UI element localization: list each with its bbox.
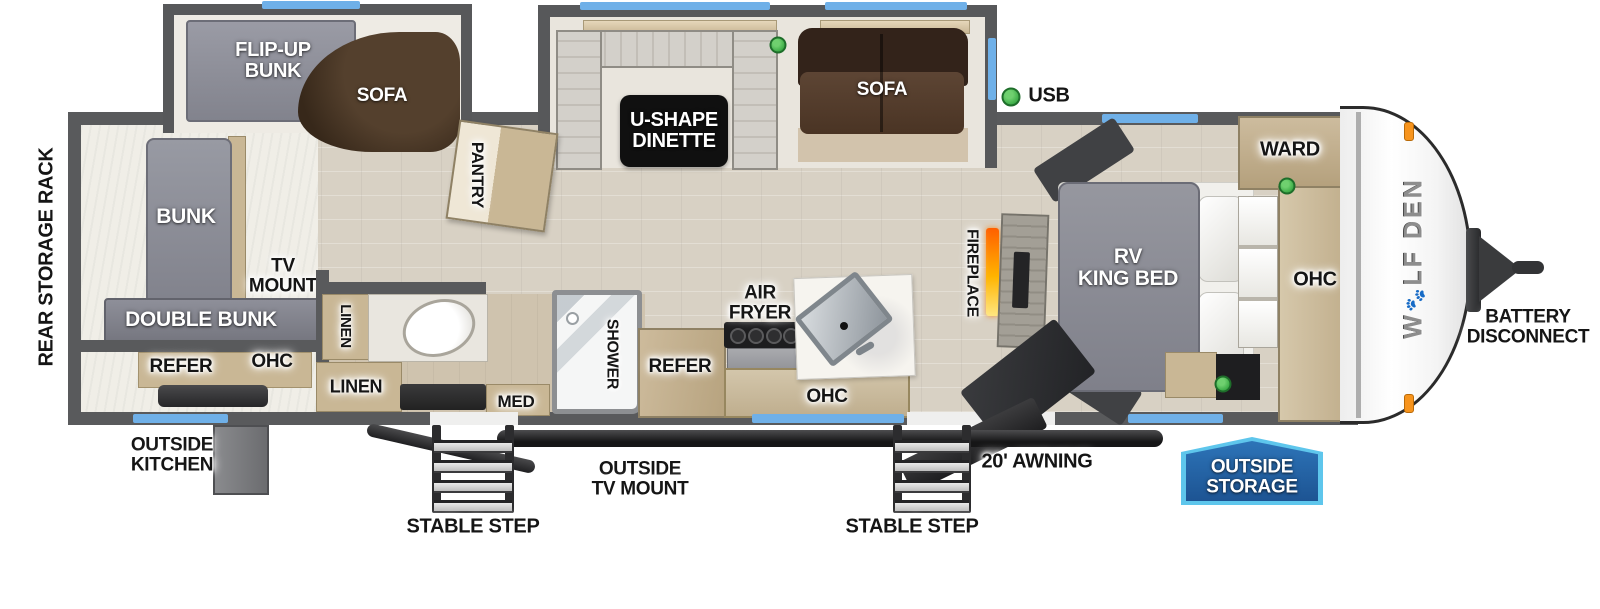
entry-door-gap-left (430, 412, 518, 425)
kitchen-ohc-label: OHC (806, 387, 847, 407)
floorplan-canvas: FLIP-UP BUNK SOFA U-SHAPE DINETTE SOFA U… (0, 0, 1600, 609)
outside-kitchen-door (213, 425, 269, 495)
outside-kitchen-refer-label: REFER (150, 357, 213, 377)
step-left-tread-4 (434, 500, 512, 513)
usb-indicator-dot-ward (1279, 178, 1296, 195)
bunk-slide-sofa-label: SOFA (357, 86, 408, 106)
bedroom-ohc-label: OHC (1293, 270, 1337, 291)
hitch-plate (1466, 228, 1481, 312)
rv-king-bed-label: RV KING BED (1078, 246, 1178, 290)
double-bunk-label: DOUBLE BUNK (125, 309, 277, 331)
step-left-tread-3 (434, 480, 512, 493)
paw-icon: 🐾 (1406, 286, 1427, 313)
linen-lower-label: LINEN (330, 378, 383, 397)
usb-indicator-dot-dinette (770, 37, 787, 54)
brand-logo: W🐾LF DEN (1400, 177, 1429, 339)
usb-legend-dot (1002, 88, 1021, 107)
cooktop-burner-2 (748, 328, 764, 344)
front-cap-seam (1356, 112, 1361, 418)
pantry-label: PANTRY (468, 142, 486, 208)
island-sink-drain (840, 322, 848, 330)
shower-head-dot (566, 312, 579, 325)
fireplace-glow (986, 228, 999, 316)
window-bottom-left (133, 414, 228, 423)
brand-logo-part2: LF DEN (1400, 177, 1428, 285)
usb-indicator-dot-bedroom (1215, 376, 1232, 393)
window-bottom-right (1128, 414, 1223, 423)
bathroom-vanity-counter (400, 384, 486, 410)
kitchen-refer-label: REFER (649, 357, 712, 377)
awning-label: 20' AWNING (981, 452, 1092, 473)
fireplace-label: FIREPLACE (963, 229, 980, 317)
step-left-tread-1 (434, 440, 512, 453)
outside-kitchen-ohc-label: OHC (251, 352, 292, 372)
bed-nightstand (1165, 352, 1217, 398)
tv-mount-label: TV MOUNT (249, 256, 317, 296)
window-dinette-slide-right (825, 2, 967, 10)
ward-label: WARD (1260, 140, 1320, 161)
marker-light-bottom (1404, 394, 1414, 413)
bedroom-shelf-stack (1238, 196, 1278, 348)
cooktop-burner-1 (730, 328, 746, 344)
step-left-tread-2 (434, 460, 512, 473)
usb-legend-label: USB (1028, 86, 1069, 107)
window-bottom-center (752, 414, 904, 423)
outside-kitchen-label: OUTSIDE KITCHEN (131, 435, 213, 475)
stable-step-right-label: STABLE STEP (845, 517, 978, 538)
outside-kitchen-griddle (158, 385, 268, 407)
window-dinette-slide-left (580, 2, 770, 10)
dinette-label: U-SHAPE DINETTE (630, 110, 718, 152)
flip-up-bunk-label: FLIP-UP BUNK (235, 40, 311, 82)
awning-tube (497, 430, 1163, 447)
step-right-tread-3 (895, 480, 969, 493)
window-dinette-slide-side (988, 38, 996, 100)
dinette-bench-left (556, 30, 602, 170)
bathroom-top-wall (316, 282, 486, 294)
marker-light-top (1404, 122, 1414, 141)
shower-label: SHOWER (603, 319, 620, 389)
bunk-label: BUNK (156, 206, 215, 228)
med-label: MED (498, 393, 535, 411)
brand-logo-part1: W (1400, 312, 1428, 339)
window-bunk-slide (262, 1, 360, 9)
shower-stall (552, 290, 642, 414)
outside-storage-label: OUTSIDE STORAGE (1206, 457, 1298, 497)
step-right-tread-1 (895, 440, 969, 453)
stable-step-left-label: STABLE STEP (406, 517, 539, 538)
rear-storage-rack-label: REAR STORAGE RACK (37, 148, 58, 367)
hitch-pin (1512, 261, 1544, 274)
cooktop-burner-3 (766, 328, 782, 344)
tv-on-media-wall (1012, 252, 1030, 309)
air-fryer-label: AIR FRYER (729, 283, 791, 323)
main-sofa-label: SOFA (857, 80, 908, 100)
battery-disconnect-label: BATTERY DISCONNECT (1467, 307, 1590, 347)
step-right-tread-2 (895, 460, 969, 473)
outside-tv-mount-label: OUTSIDE TV MOUNT (592, 459, 689, 499)
pantry-cabinet (446, 120, 559, 233)
linen-upper-label: LINEN (337, 304, 353, 348)
step-right-tread-4 (895, 500, 969, 513)
